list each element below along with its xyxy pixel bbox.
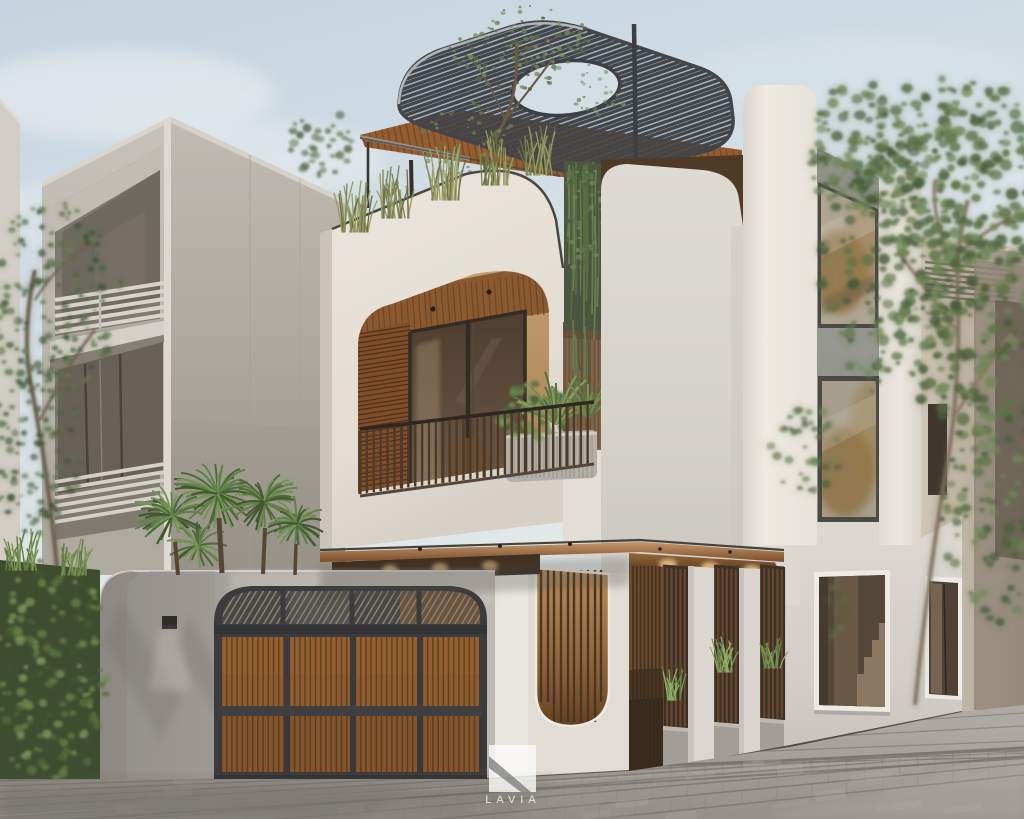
svg-text:LAVIA: LAVIA — [485, 794, 540, 806]
